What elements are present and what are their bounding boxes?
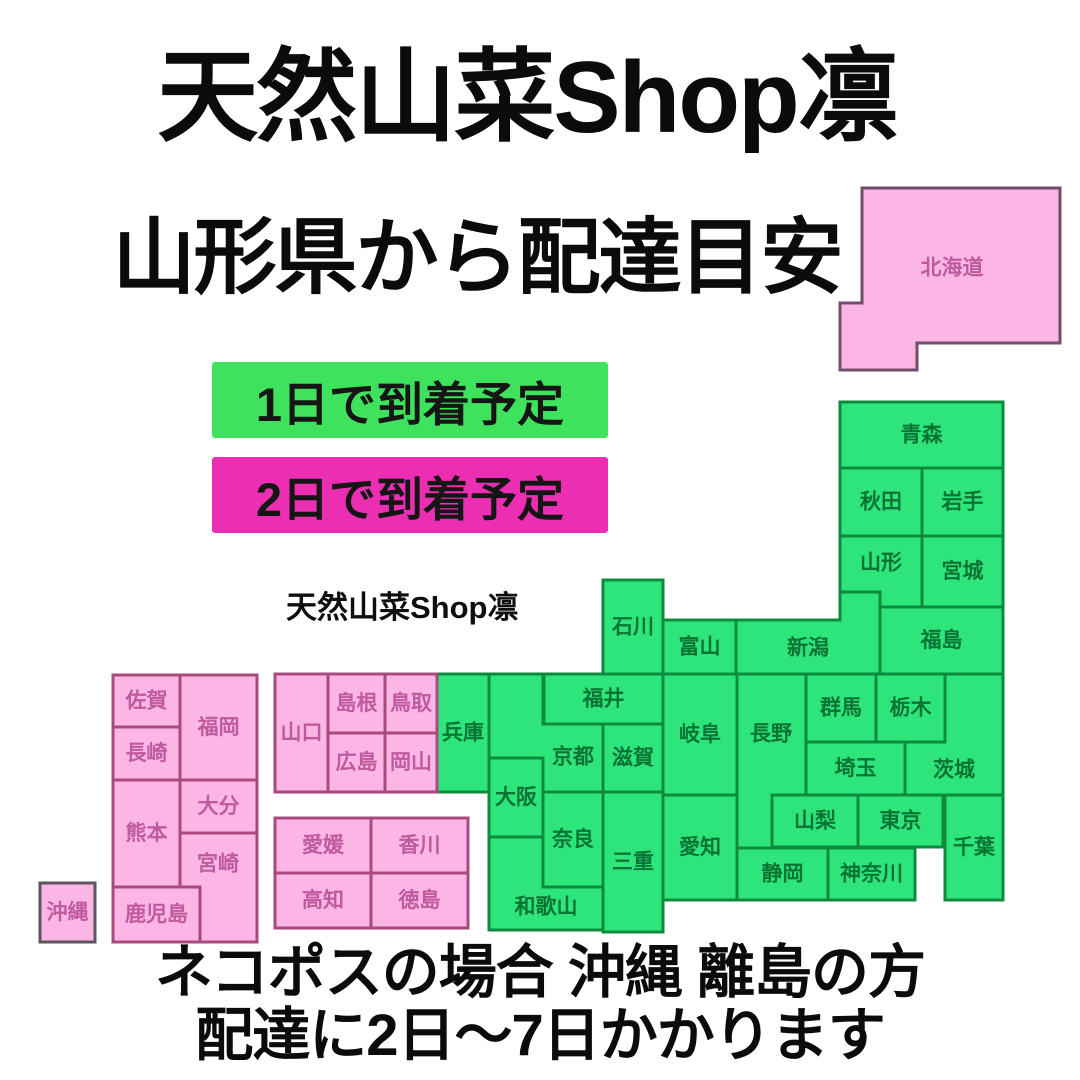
- prefecture-yamanashi: 山梨: [772, 795, 858, 847]
- prefecture-tokyo: 東京: [858, 795, 943, 847]
- prefecture-okayama: 岡山: [385, 733, 437, 792]
- prefecture-label: 石川: [611, 616, 654, 639]
- prefecture-shape: [736, 592, 880, 674]
- footer-note: ネコポスの場合 沖縄 離島の方 配達に2日〜7日かかります: [0, 942, 1080, 1067]
- prefecture-fukushima: 福島: [880, 607, 1003, 674]
- prefecture-label: 新潟: [787, 636, 829, 660]
- prefecture-label: 滋賀: [612, 746, 654, 770]
- prefecture-label: 大阪: [495, 786, 538, 809]
- prefecture-osaka: 大阪: [489, 758, 543, 837]
- prefecture-akita: 秋田: [840, 468, 922, 536]
- prefecture-label: 福岡: [197, 716, 240, 739]
- prefecture-kagoshima: 鹿児島: [113, 887, 200, 942]
- legend-2day-label: 2日で到着予定: [256, 461, 564, 530]
- prefecture-kanagawa: 神奈川: [828, 848, 915, 900]
- prefecture-kochi: 高知: [275, 873, 371, 928]
- prefecture-aichi: 愛知: [663, 795, 737, 900]
- prefecture-hiroshima: 広島: [328, 733, 385, 792]
- prefecture-hokkaido: 北海道: [840, 188, 1060, 370]
- legend-1day-label: 1日で到着予定: [256, 366, 564, 435]
- prefecture-gifu: 岐阜: [663, 674, 737, 795]
- prefecture-label: 山形: [860, 552, 902, 575]
- prefecture-label: 北海道: [921, 256, 984, 280]
- prefecture-oita: 大分: [180, 780, 257, 833]
- prefecture-miyagi: 宮城: [922, 536, 1003, 607]
- prefecture-label: 島根: [336, 691, 378, 715]
- prefecture-fukui: 福井: [544, 674, 663, 724]
- prefecture-label: 埼玉: [835, 757, 877, 780]
- prefecture-saga: 佐賀: [113, 675, 180, 727]
- prefecture-label: 鹿児島: [125, 902, 188, 926]
- prefecture-tochigi: 栃木: [876, 674, 945, 742]
- legend-1day-badge: 1日で到着予定: [212, 362, 608, 438]
- prefecture-label: 佐賀: [125, 689, 168, 713]
- page-subtitle: 山形県から配達目安: [113, 190, 842, 310]
- delivery-poster: 北海道青森秋田岩手山形宮城福島新潟富山石川福井群馬栃木茨城埼玉岐阜長野山梨東京千…: [0, 0, 1080, 1080]
- prefecture-label: 宮崎: [197, 852, 239, 876]
- prefecture-label: 愛媛: [302, 833, 345, 857]
- prefecture-label: 茨城: [933, 758, 975, 782]
- prefecture-label: 熊本: [126, 821, 168, 845]
- footer-line-2: 配達に2日〜7日かかります: [0, 1005, 1080, 1068]
- prefecture-hyogo: 兵庫: [437, 674, 489, 792]
- prefecture-label: 岡山: [390, 751, 432, 774]
- prefecture-aomori: 青森: [840, 402, 1003, 468]
- prefecture-tottori: 鳥取: [385, 674, 437, 733]
- prefecture-label: 千葉: [953, 836, 996, 859]
- prefecture-ehime: 愛媛: [275, 818, 371, 873]
- prefecture-ishikawa: 石川: [603, 580, 663, 674]
- prefecture-gunma: 群馬: [806, 674, 876, 742]
- prefecture-label: 秋田: [860, 491, 902, 514]
- prefecture-okinawa: 沖縄: [40, 883, 95, 942]
- prefecture-iwate: 岩手: [922, 468, 1003, 536]
- prefecture-label: 福井: [582, 688, 625, 711]
- prefecture-label: 東京: [880, 809, 922, 833]
- prefecture-toyama: 富山: [663, 620, 736, 674]
- prefecture-mie: 三重: [603, 792, 663, 932]
- prefecture-yamaguchi: 山口: [275, 674, 328, 792]
- prefecture-label: 山梨: [794, 810, 836, 833]
- prefecture-label: 長崎: [126, 742, 168, 765]
- prefecture-kumamoto: 熊本: [113, 780, 180, 887]
- legend-2day-badge: 2日で到着予定: [212, 457, 608, 533]
- prefecture-label: 沖縄: [47, 901, 89, 924]
- prefecture-kagawa: 香川: [371, 818, 468, 873]
- prefecture-label: 香川: [399, 834, 441, 857]
- prefecture-label: 愛知: [679, 835, 721, 859]
- prefecture-shiga: 滋賀: [603, 724, 663, 792]
- prefecture-label: 山口: [281, 722, 323, 745]
- prefecture-label: 静岡: [762, 862, 804, 886]
- prefecture-label: 奈良: [551, 827, 594, 851]
- prefecture-label: 栃木: [890, 696, 933, 720]
- prefecture-nagasaki: 長崎: [113, 727, 180, 780]
- prefecture-label: 富山: [679, 635, 721, 659]
- prefecture-chiba: 千葉: [945, 795, 1003, 900]
- prefecture-label: 三重: [612, 851, 654, 874]
- prefecture-label: 徳島: [398, 888, 441, 912]
- watermark-text: 天然山菜Shop凛: [286, 582, 518, 627]
- prefecture-shimane: 島根: [328, 674, 385, 733]
- prefecture-label: 岐阜: [679, 722, 721, 746]
- prefecture-label: 和歌山: [515, 895, 578, 919]
- prefecture-label: 群馬: [820, 696, 862, 720]
- prefecture-label: 大分: [198, 795, 240, 818]
- prefecture-label: 岩手: [941, 490, 984, 514]
- japan-map: 北海道青森秋田岩手山形宮城福島新潟富山石川福井群馬栃木茨城埼玉岐阜長野山梨東京千…: [0, 0, 1080, 1080]
- shop-title: 天然山菜Shop凛: [157, 16, 896, 162]
- prefecture-label: 京都: [552, 745, 594, 769]
- prefecture-label: 神奈川: [840, 862, 903, 886]
- prefecture-niigata: 新潟: [736, 592, 880, 674]
- prefecture-label: 高知: [302, 888, 344, 912]
- prefecture-label: 広島: [336, 750, 378, 774]
- prefecture-tokushima: 徳島: [371, 873, 468, 928]
- prefecture-saitama: 埼玉: [806, 742, 905, 795]
- prefecture-label: 兵庫: [442, 721, 484, 745]
- prefecture-label: 鳥取: [390, 691, 432, 715]
- prefecture-nara: 奈良: [543, 792, 603, 887]
- prefecture-label: 宮城: [942, 559, 984, 583]
- prefecture-shizuoka: 静岡: [737, 848, 828, 900]
- prefecture-label: 長野: [750, 723, 792, 746]
- prefecture-fukuoka: 福岡: [180, 675, 257, 780]
- prefecture-label: 福島: [920, 628, 963, 652]
- footer-line-1: ネコポスの場合 沖縄 離島の方: [0, 942, 1080, 1005]
- prefecture-label: 青森: [901, 424, 944, 447]
